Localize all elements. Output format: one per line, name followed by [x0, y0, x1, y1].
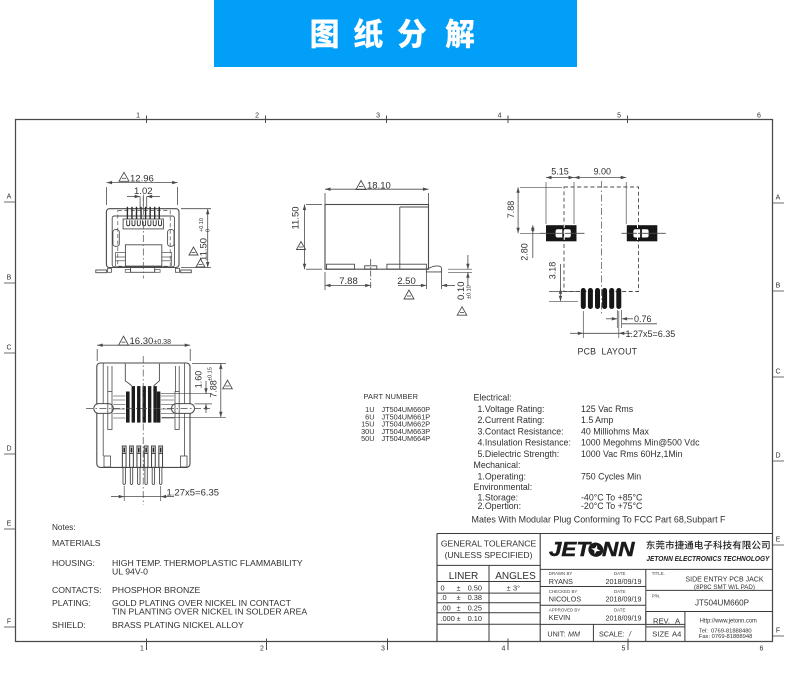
svg-text:7.88: 7.88 — [209, 380, 219, 398]
svg-text:Mechanical:: Mechanical: — [474, 460, 521, 470]
svg-text:+0.10: +0.10 — [199, 218, 205, 232]
svg-text:TIN PLANTING OVER NICKEL IN SO: TIN PLANTING OVER NICKEL IN SOLDER AREA — [112, 607, 307, 617]
svg-text:Mates With Modular Plug Confor: Mates With Modular Plug Conforming To FC… — [472, 515, 727, 525]
svg-text:3°: 3° — [513, 584, 520, 593]
svg-text:APPROVED BY: APPROVED BY — [549, 608, 581, 613]
svg-text:3.Contact Resistance:: 3.Contact Resistance: — [478, 426, 564, 436]
svg-text:SIDE ENTRY PCB JACK: SIDE ENTRY PCB JACK — [686, 575, 764, 584]
svg-text:1.5 Amp: 1.5 Amp — [581, 415, 613, 425]
svg-text:HOUSING:: HOUSING: — [52, 558, 95, 568]
svg-text:CONTACTS:: CONTACTS: — [52, 585, 102, 595]
svg-text:CHECKED BY: CHECKED BY — [549, 589, 578, 594]
svg-text:.00: .00 — [441, 603, 451, 612]
svg-text:12.96: 12.96 — [130, 173, 154, 184]
svg-text:B: B — [7, 275, 12, 282]
svg-text:±: ± — [456, 593, 460, 602]
svg-text:LINER: LINER — [449, 571, 478, 582]
svg-text:2.80: 2.80 — [520, 243, 530, 261]
svg-text:3: 3 — [376, 113, 380, 120]
svg-text:A: A — [7, 194, 12, 201]
svg-text:2.Opertion:: 2.Opertion: — [478, 501, 522, 511]
svg-text:2: 2 — [255, 113, 259, 120]
svg-text:KEVIN: KEVIN — [549, 613, 571, 622]
svg-text:4: 4 — [498, 113, 502, 120]
svg-text:2: 2 — [260, 646, 264, 653]
svg-text:±0.10: ±0.10 — [467, 285, 473, 299]
svg-text:1.60: 1.60 — [194, 371, 204, 389]
svg-text:±: ± — [456, 603, 460, 612]
svg-text:2018/09/19: 2018/09/19 — [606, 595, 642, 604]
svg-text:5.Dielectric Strength:: 5.Dielectric Strength: — [478, 449, 560, 459]
svg-text:50U: 50U — [361, 434, 374, 443]
svg-text:NICOLOS: NICOLOS — [549, 595, 582, 604]
svg-text:DATE: DATE — [614, 608, 625, 613]
svg-text:4: 4 — [502, 646, 506, 653]
svg-text:JT504UM660P: JT504UM660P — [695, 598, 749, 608]
svg-text:1: 1 — [136, 113, 140, 120]
svg-text:PHOSPHOR BRONZE: PHOSPHOR BRONZE — [112, 585, 201, 595]
svg-text:2.50: 2.50 — [397, 276, 416, 287]
svg-text:3.18: 3.18 — [548, 262, 558, 280]
svg-text:1000 Vac Rms 60Hz,1Min: 1000 Vac Rms 60Hz,1Min — [581, 449, 683, 459]
svg-text:DRAWN BY: DRAWN BY — [549, 571, 573, 576]
svg-text:5.15: 5.15 — [551, 167, 569, 177]
svg-text:.000: .000 — [441, 614, 455, 623]
svg-text:2018/09/19: 2018/09/19 — [606, 614, 642, 623]
svg-text:6: 6 — [757, 113, 761, 120]
svg-text:BRASS PLATING NICKEL ALLOY: BRASS PLATING NICKEL ALLOY — [112, 620, 244, 630]
svg-text:6: 6 — [760, 646, 764, 653]
svg-text:0.10: 0.10 — [468, 614, 482, 623]
svg-text:F: F — [7, 619, 11, 626]
svg-text:0.76: 0.76 — [634, 314, 652, 324]
svg-text:E: E — [7, 521, 12, 528]
svg-text:GENERAL TOLERANCE: GENERAL TOLERANCE — [441, 539, 537, 549]
svg-text:B: B — [776, 283, 781, 290]
svg-text:SHIELD:: SHIELD: — [52, 620, 86, 630]
svg-text:7.88: 7.88 — [339, 276, 358, 287]
svg-text:1: 1 — [140, 646, 144, 653]
svg-text:2.Current Rating:: 2.Current Rating: — [478, 415, 545, 425]
svg-text:D: D — [6, 446, 11, 453]
svg-text:.0: .0 — [441, 593, 447, 602]
svg-text:JET: JET — [549, 538, 592, 561]
svg-text:SCALE:: SCALE: — [599, 630, 625, 639]
svg-text:±0.38: ±0.38 — [154, 339, 172, 346]
svg-text:5: 5 — [622, 646, 626, 653]
svg-text:PLATING:: PLATING: — [52, 598, 91, 608]
svg-text:1.27x5=6.35: 1.27x5=6.35 — [626, 329, 676, 339]
svg-text:-20°C To +75°C: -20°C To +75°C — [581, 501, 643, 511]
svg-text:18.10: 18.10 — [367, 180, 391, 191]
svg-text:C: C — [775, 369, 780, 376]
svg-text:Notes:: Notes: — [52, 523, 76, 532]
svg-text:A: A — [776, 195, 781, 202]
svg-text:0: 0 — [206, 229, 212, 232]
svg-text:1000 Megohms Min@500 Vdc: 1000 Megohms Min@500 Vdc — [581, 438, 700, 448]
svg-text:±: ± — [456, 584, 460, 593]
svg-text:Electrical:: Electrical: — [474, 393, 512, 403]
svg-text:A4: A4 — [672, 629, 681, 638]
svg-text:D: D — [775, 453, 780, 460]
svg-text:C: C — [6, 345, 11, 352]
svg-text:PCB LAYOUT: PCB LAYOUT — [578, 347, 638, 357]
svg-text:0.50: 0.50 — [468, 584, 482, 593]
svg-text:Http://www.jetonn.com: Http://www.jetonn.com — [700, 619, 757, 625]
svg-text:DATE: DATE — [614, 571, 625, 576]
svg-text:Environmental:: Environmental: — [474, 482, 533, 492]
svg-text:MM: MM — [568, 630, 580, 639]
svg-text:5: 5 — [617, 113, 621, 120]
svg-text:Fax: 0769-81888948: Fax: 0769-81888948 — [699, 634, 753, 640]
svg-text:0.25: 0.25 — [468, 603, 482, 612]
svg-text:JT504UM664P: JT504UM664P — [382, 434, 431, 443]
svg-text:750 Cycles Min: 750 Cycles Min — [581, 471, 641, 481]
svg-text:1.27x5=6.35: 1.27x5=6.35 — [167, 488, 220, 499]
svg-text:(UNLESS SPECIFIED): (UNLESS SPECIFIED) — [445, 550, 533, 560]
svg-text:0.38: 0.38 — [468, 593, 482, 602]
svg-text:UL 94V-0: UL 94V-0 — [112, 567, 148, 577]
svg-text:0: 0 — [441, 584, 445, 593]
svg-text:RYANS: RYANS — [549, 577, 573, 586]
svg-text:1.Operating:: 1.Operating: — [478, 471, 526, 481]
svg-text:F: F — [776, 628, 780, 635]
svg-text:JETONN ELECTRONICS TECHNOLOGY: JETONN ELECTRONICS TECHNOLOGY — [646, 554, 770, 563]
svg-text:(8P8C SMT W/L PAD): (8P8C SMT W/L PAD) — [694, 584, 755, 591]
svg-text:±: ± — [507, 584, 511, 593]
svg-text:±: ± — [456, 614, 460, 623]
svg-text:40 Milliohms Max: 40 Milliohms Max — [581, 426, 650, 436]
svg-text:SIZE: SIZE — [652, 629, 669, 638]
svg-text:ANGLES: ANGLES — [495, 571, 536, 582]
svg-text:3: 3 — [381, 646, 385, 653]
svg-text:1.Voltage Rating:: 1.Voltage Rating: — [478, 404, 545, 414]
svg-text:E: E — [776, 537, 781, 544]
svg-text:MATERIALS: MATERIALS — [52, 538, 101, 548]
svg-text:16.30: 16.30 — [130, 336, 154, 347]
svg-text:DATE: DATE — [614, 589, 625, 594]
svg-text:7.88: 7.88 — [506, 201, 516, 219]
svg-text:PART NUMBER: PART NUMBER — [364, 392, 419, 401]
svg-text:11.50: 11.50 — [199, 238, 210, 261]
svg-text:NN: NN — [602, 538, 636, 561]
svg-text:11.50: 11.50 — [291, 206, 302, 229]
svg-text:REV.: REV. — [653, 616, 670, 625]
svg-text:9.00: 9.00 — [594, 167, 612, 177]
svg-text:TITLE.: TITLE. — [652, 571, 665, 576]
svg-text:4.Insulation Resistance:: 4.Insulation Resistance: — [478, 438, 571, 448]
svg-text:0.10: 0.10 — [456, 282, 467, 301]
svg-text:P/N.: P/N. — [652, 594, 661, 599]
svg-text:UNIT:: UNIT: — [547, 630, 565, 639]
svg-text:±0.15: ±0.15 — [208, 367, 214, 381]
svg-text:125 Vac Rms: 125 Vac Rms — [581, 404, 634, 414]
svg-text:2018/09/19: 2018/09/19 — [606, 577, 642, 586]
